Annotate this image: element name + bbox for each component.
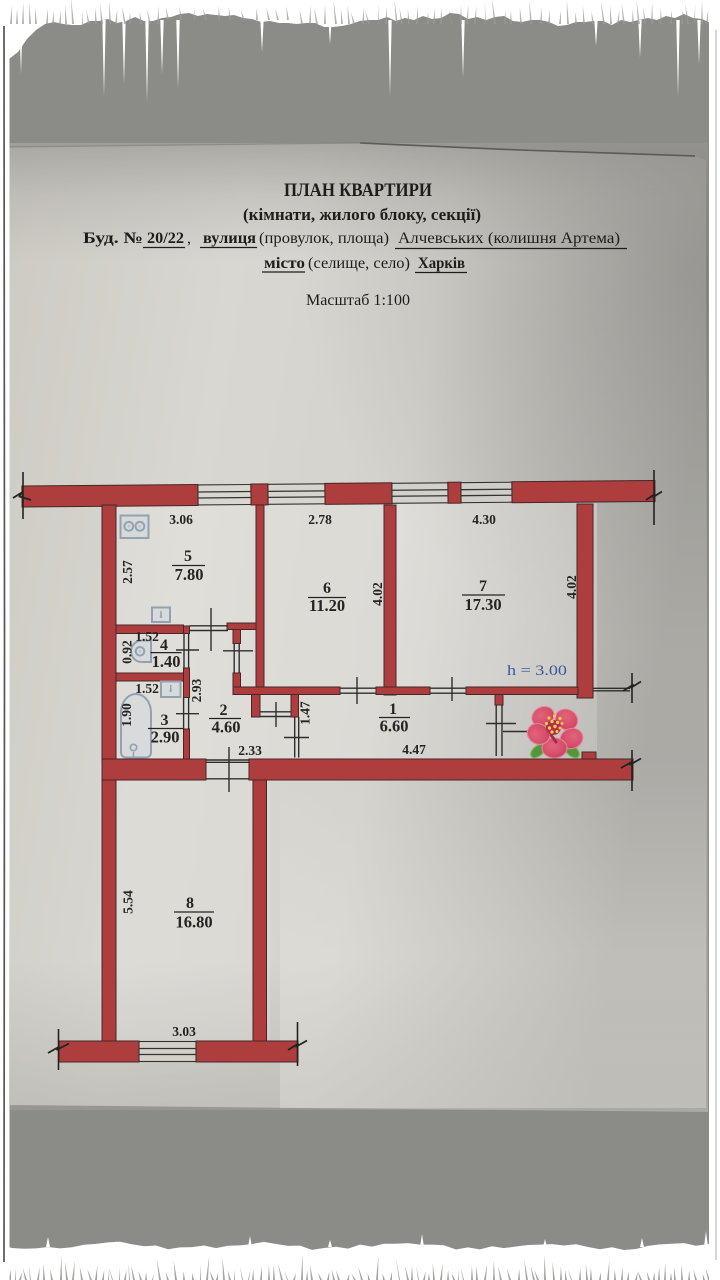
svg-text:місто: місто — [264, 255, 305, 272]
svg-text:3.03: 3.03 — [172, 1024, 196, 1039]
svg-text:6: 6 — [323, 580, 331, 597]
svg-text:4.47: 4.47 — [402, 742, 426, 757]
svg-text:4.02: 4.02 — [564, 575, 579, 599]
svg-text:2.78: 2.78 — [308, 512, 332, 527]
svg-text:ПЛАН КВАРТИРИ: ПЛАН КВАРТИРИ — [284, 181, 433, 201]
svg-text:Алчевських (колишня Артема): Алчевських (колишня Артема) — [398, 230, 620, 247]
svg-text:2.33: 2.33 — [238, 743, 262, 758]
svg-text:11.20: 11.20 — [309, 596, 345, 615]
svg-text:1.90: 1.90 — [119, 703, 134, 727]
svg-text:17.30: 17.30 — [464, 595, 501, 614]
svg-text:7: 7 — [479, 578, 487, 595]
svg-text:8: 8 — [186, 895, 194, 912]
svg-text:(провулок, площа): (провулок, площа) — [259, 230, 389, 247]
svg-text:вулиця: вулиця — [203, 230, 256, 247]
svg-text:5.54: 5.54 — [121, 890, 136, 914]
svg-text:0.92: 0.92 — [120, 640, 135, 664]
svg-text:1.40: 1.40 — [152, 652, 181, 671]
svg-text:(кімнати, жилого блоку, секції: (кімнати, жилого блоку, секції) — [243, 205, 481, 224]
svg-text:4.60: 4.60 — [212, 718, 241, 737]
svg-text:3: 3 — [161, 712, 169, 729]
svg-text:h = 3.00: h = 3.00 — [507, 663, 567, 679]
svg-text:7.80: 7.80 — [175, 565, 204, 584]
svg-text:4.02: 4.02 — [370, 582, 385, 606]
svg-text:5: 5 — [184, 548, 192, 565]
svg-text:Масштаб 1:100: Масштаб 1:100 — [306, 292, 410, 309]
svg-text:2.90: 2.90 — [151, 728, 180, 747]
svg-text:16.80: 16.80 — [175, 913, 212, 932]
svg-text:1: 1 — [389, 701, 397, 718]
svg-text:4.30: 4.30 — [472, 512, 496, 527]
svg-text:(селище, село): (селище, село) — [308, 255, 410, 272]
svg-text:1.47: 1.47 — [298, 701, 313, 725]
svg-text:Буд. №: Буд. № — [83, 230, 143, 247]
svg-text:,: , — [187, 230, 191, 247]
svg-text:6.60: 6.60 — [380, 717, 409, 736]
svg-text:2.57: 2.57 — [120, 560, 135, 584]
svg-text:20/22: 20/22 — [147, 230, 184, 247]
svg-text:1.52: 1.52 — [135, 681, 159, 696]
svg-text:Харків: Харків — [418, 255, 465, 272]
svg-text:1.52: 1.52 — [135, 629, 159, 644]
svg-text:2: 2 — [220, 702, 228, 719]
svg-text:2.93: 2.93 — [189, 678, 204, 702]
svg-text:3.06: 3.06 — [169, 512, 193, 527]
